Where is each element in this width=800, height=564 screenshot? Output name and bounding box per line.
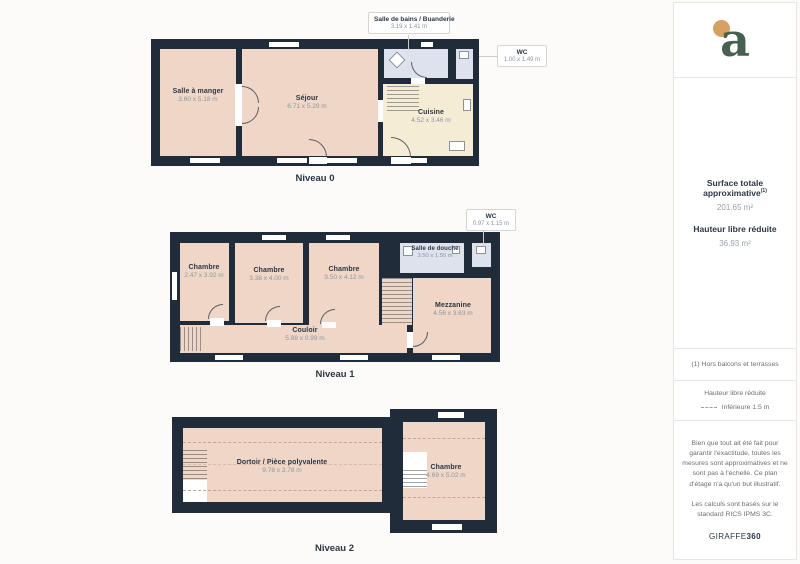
room-dims: 4.52 x 3.46 m: [411, 117, 450, 124]
reduced-height-title: Hauteur libre réduite: [693, 224, 776, 234]
room-name: Salle de douche: [411, 246, 458, 252]
footnote-marker: (1): [761, 188, 767, 194]
window: [432, 524, 462, 530]
window: [340, 355, 368, 360]
window: [323, 158, 357, 163]
floorplan-niveau-2-right: Chambre 4.69 x 5.02 m: [390, 409, 497, 533]
giraffe360-logo: GIRAFFE360: [709, 532, 761, 541]
callout-title: Salle de bains / Buanderie: [374, 16, 444, 23]
toilet-icon: [476, 246, 486, 254]
room-name: Dortoir / Pièce polyvalente: [237, 459, 328, 466]
door-opening: [309, 157, 327, 164]
window: [438, 412, 464, 418]
room-name: Chambre: [426, 464, 465, 471]
callout-leader-line: [408, 35, 409, 50]
door-opening: [378, 100, 383, 122]
room-dims: 6.71 x 5.29 m: [287, 103, 326, 110]
brand-suffix: 360: [746, 532, 761, 541]
floor-caption: Niveau 0: [151, 173, 479, 184]
reduced-height-line: [183, 490, 382, 491]
toilet-icon: [459, 51, 469, 59]
surface-total-title: Surface totale approximative(1): [674, 178, 796, 198]
reduced-height-line: [183, 442, 382, 443]
window: [190, 158, 220, 163]
room-label: Cuisine 4.52 x 3.46 m: [411, 109, 450, 124]
reduced-height-line: [403, 438, 485, 439]
room-name: Chambre: [324, 266, 363, 273]
floor-caption: Niveau 1: [170, 369, 500, 380]
floorplan-page: Salle de bains / Buanderie 3.19 x 1.41 m…: [0, 0, 800, 564]
floorplan-niveau-0: Salle à manger 3.60 x 5.18 m Séjour 6.71…: [151, 39, 479, 166]
window: [326, 235, 350, 240]
room-name: Séjour: [287, 95, 326, 102]
window: [215, 355, 243, 360]
footnote-section: (1) Hors balcons et terrasses: [673, 348, 797, 381]
room-label: Dortoir / Pièce polyvalente 9.78 x 3.78 …: [237, 459, 328, 474]
callout-salle-de-bains: Salle de bains / Buanderie 3.19 x 1.41 m: [368, 12, 450, 34]
window: [172, 272, 177, 300]
room-chambre-3: [309, 243, 379, 326]
room-name: Chambre: [184, 264, 223, 271]
callout-wc-n0: WC 1.00 x 1.49 m: [497, 45, 547, 67]
window: [262, 235, 286, 240]
room-name: Chambre: [249, 267, 288, 274]
window: [421, 42, 433, 47]
room-label: Salle à manger 3.60 x 5.18 m: [173, 88, 224, 103]
callout-dims: 1.00 x 1.49 m: [503, 57, 541, 63]
door-opening: [210, 318, 224, 326]
window: [432, 355, 460, 360]
room-label: Chambre 4.69 x 5.02 m: [426, 464, 465, 479]
callout-leader-line: [479, 56, 497, 57]
stair-void: [183, 480, 207, 502]
callout-wc-n1: WC 0.97 x 1.15 m: [466, 209, 516, 231]
door-opening: [391, 157, 411, 164]
room-name: Couloir: [285, 327, 324, 334]
disclaimer-section: Bien que tout ait été fait pour garantir…: [673, 420, 797, 560]
stairs-icon: [183, 450, 207, 480]
room-dims: 5.88 x 0.99 m: [285, 335, 324, 342]
legend-section: Hauteur libre réduite Inférieure 1.5 m: [673, 380, 797, 421]
room-label: Couloir 5.88 x 0.99 m: [285, 327, 324, 342]
room-label: Séjour 6.71 x 5.29 m: [287, 95, 326, 110]
disclaimer-text: Bien que tout ait été fait pour garantir…: [674, 439, 796, 490]
room-label: Salle de douche 3.50 x 1.50 m: [411, 246, 458, 259]
floorplan-niveau-1: Chambre 2.47 x 3.92 m Chambre 3.38 x 4.0…: [170, 232, 500, 362]
info-sidebar: a Surface totale approximative(1) 201.65…: [673, 2, 797, 560]
room-label: Chambre 2.47 x 3.92 m: [184, 264, 223, 279]
surface-total-label: Surface totale approximative: [703, 178, 763, 198]
room-dims: 3.50 x 4.12 m: [324, 274, 363, 281]
room-dims: 9.78 x 3.78 m: [237, 467, 328, 474]
callout-title: WC: [503, 49, 541, 56]
surface-summary-section: Surface totale approximative(1) 201.65 m…: [673, 77, 797, 349]
window: [277, 158, 307, 163]
stairs-icon: [403, 470, 427, 488]
floor-caption: Niveau 2: [172, 543, 497, 554]
room-dims: 3.60 x 5.18 m: [173, 96, 224, 103]
legend-item: Inférieure 1.5 m: [701, 404, 770, 411]
legend-title: Hauteur libre réduite: [704, 390, 766, 397]
room-label: Mezzanine 4.56 x 3.63 m: [433, 302, 472, 317]
room-label: Chambre 3.50 x 4.12 m: [324, 266, 363, 281]
room-dims: 2.47 x 3.92 m: [184, 272, 223, 279]
door-opening: [411, 78, 425, 84]
callout-dims: 0.97 x 1.15 m: [472, 221, 510, 227]
room-name: Mezzanine: [433, 302, 472, 309]
room-dims: 3.38 x 4.00 m: [249, 275, 288, 282]
room-dims: 4.69 x 5.02 m: [426, 472, 465, 479]
surface-total-value: 201.65 m²: [717, 203, 753, 212]
room-name: Cuisine: [411, 109, 450, 116]
reduced-height-line: [403, 497, 485, 498]
room-label: Chambre 3.38 x 4.00 m: [249, 267, 288, 282]
stove-icon: [449, 141, 465, 151]
legend-label: Inférieure 1.5 m: [722, 404, 770, 411]
callout-title: WC: [472, 213, 510, 220]
reduced-height-dash-icon: [701, 407, 717, 408]
logo-section: a: [673, 2, 797, 78]
footnote-text: (1) Hors balcons et terrasses: [691, 361, 778, 368]
window: [269, 42, 299, 47]
room-dims: 4.56 x 3.63 m: [433, 310, 472, 317]
stairs-icon: [382, 278, 412, 325]
callout-dims: 3.19 x 1.41 m: [374, 24, 444, 30]
brand-name: GIRAFFE: [709, 532, 746, 541]
floorplan-niveau-2-left: Dortoir / Pièce polyvalente 9.78 x 3.78 …: [172, 417, 393, 513]
door-opening: [267, 320, 281, 327]
standard-text: Les calculs sont basés sur le standard R…: [674, 500, 796, 520]
appliance-icon: [463, 99, 471, 111]
room-name: Salle à manger: [173, 88, 224, 95]
reduced-height-value: 36.93 m²: [719, 239, 751, 248]
room-dims: 3.50 x 1.50 m: [411, 253, 458, 259]
stairs-icon: [180, 327, 202, 351]
door-opening: [235, 84, 242, 126]
logo-letter: a: [720, 13, 750, 67]
agency-logo: a: [720, 17, 750, 63]
callout-leader-line: [483, 231, 484, 245]
